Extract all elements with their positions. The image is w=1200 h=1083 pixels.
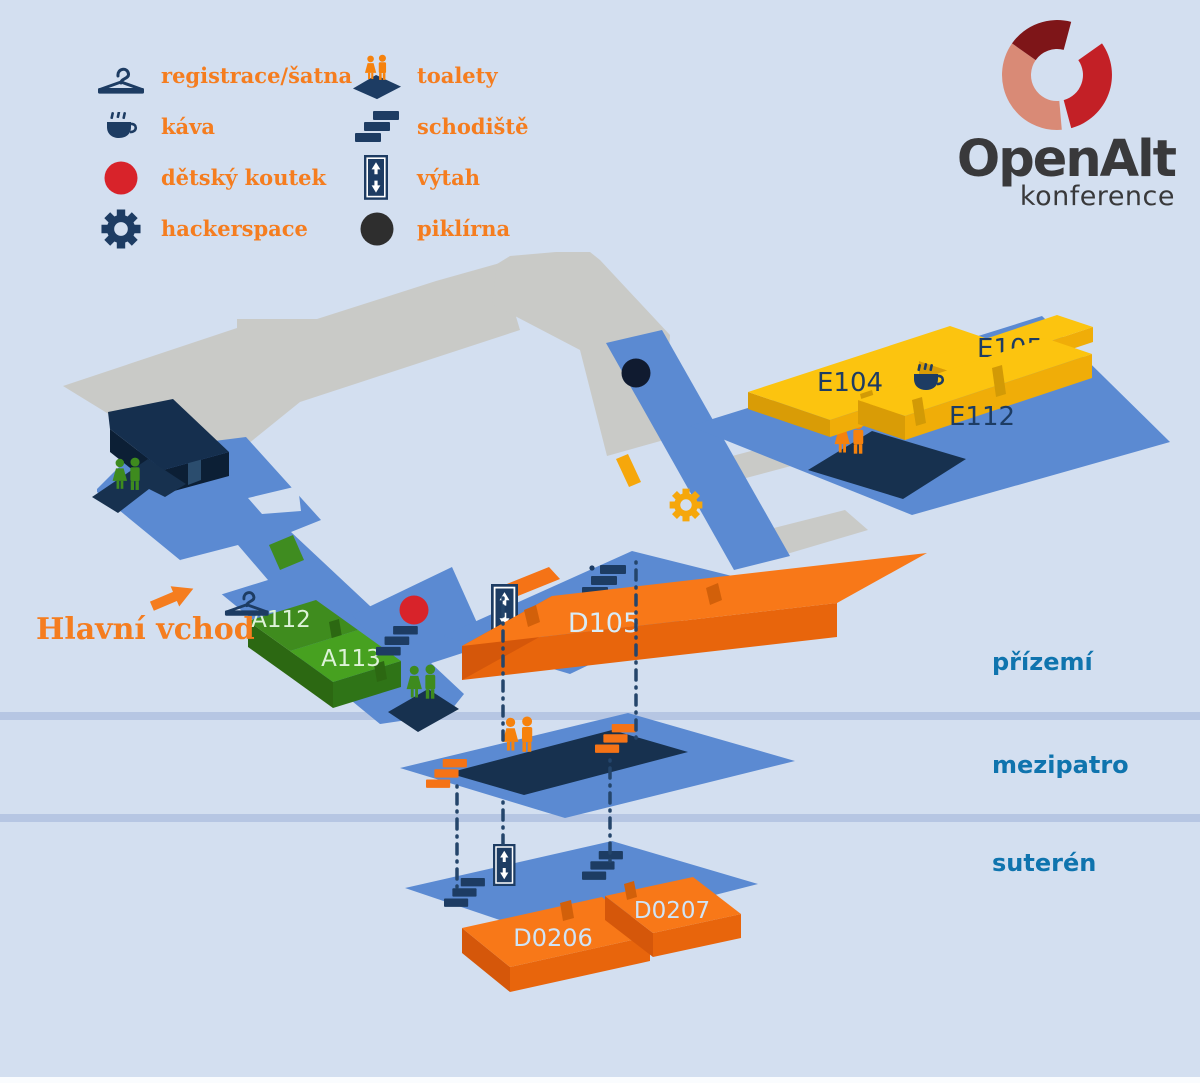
openalt-logo-icon xyxy=(995,13,1119,137)
toilets-icon xyxy=(352,51,402,101)
kids-corner-dot-icon xyxy=(96,160,146,196)
legend-item-toalety: toalety xyxy=(352,50,572,101)
divider-mezzanine-basement xyxy=(0,814,1200,822)
legend-column-2: toalety schodiště výtah piklírna xyxy=(352,50,572,254)
legend-item-detsky-koutek: dětský koutek xyxy=(96,152,352,203)
elevator-icon xyxy=(352,155,402,201)
legend-label: káva xyxy=(161,114,215,139)
gear-icon-map xyxy=(670,489,703,522)
room-label-d105: D105 xyxy=(568,608,640,639)
entrance-label: Hlavní vchod xyxy=(36,612,255,647)
kids-corner-dot-icon xyxy=(400,596,429,625)
legend-label: výtah xyxy=(417,165,480,190)
legend-label: schodiště xyxy=(417,114,528,139)
room-label-e104: E104 xyxy=(817,368,883,398)
bottom-edge xyxy=(0,1077,1200,1083)
legend-item-hackerspace: hackerspace xyxy=(96,203,352,254)
venue-map-page: A112 A113 xyxy=(0,0,1200,1083)
stairs-icon xyxy=(352,110,402,144)
openalt-logo-text: OpenAlt konference xyxy=(940,134,1175,210)
floor-label-ground: přízemí xyxy=(992,648,1093,676)
room-label-d0206: D0206 xyxy=(513,924,593,952)
legend-item-vytah: výtah xyxy=(352,152,572,203)
logo-title: OpenAlt xyxy=(940,134,1175,185)
yellow-door-stripe xyxy=(616,454,641,487)
legend-label: hackerspace xyxy=(161,216,308,241)
dark-dot-icon xyxy=(352,211,402,247)
floor-label-mezzanine: mezipatro xyxy=(992,751,1129,779)
floor-label-basement: suterén xyxy=(992,849,1096,877)
legend-label: toalety xyxy=(417,63,498,88)
piklirna-dot-icon xyxy=(622,359,651,388)
room-label-e112: E112 xyxy=(949,402,1015,432)
legend-column-1: registrace/šatna káva dětský koutek hack… xyxy=(96,50,352,254)
legend: registrace/šatna káva dětský koutek hack… xyxy=(96,50,572,254)
legend-label: dětský koutek xyxy=(161,165,326,190)
coffee-icon xyxy=(96,112,146,142)
elevator-icon-basement xyxy=(493,844,516,886)
entrance-arrow-icon xyxy=(148,578,198,616)
legend-label: registrace/šatna xyxy=(161,63,352,88)
legend-item-schodiste: schodiště xyxy=(352,101,572,152)
legend-label: piklírna xyxy=(417,216,510,241)
gear-icon xyxy=(96,208,146,250)
legend-item-kava: káva xyxy=(96,101,352,152)
legend-item-registrace: registrace/šatna xyxy=(96,50,352,101)
divider-ground-mezzanine xyxy=(0,712,1200,720)
legend-item-piklirna: piklírna xyxy=(352,203,572,254)
room-label-a113: A113 xyxy=(321,646,381,672)
room-label-d0207: D0207 xyxy=(634,898,710,924)
hanger-icon xyxy=(96,56,146,96)
